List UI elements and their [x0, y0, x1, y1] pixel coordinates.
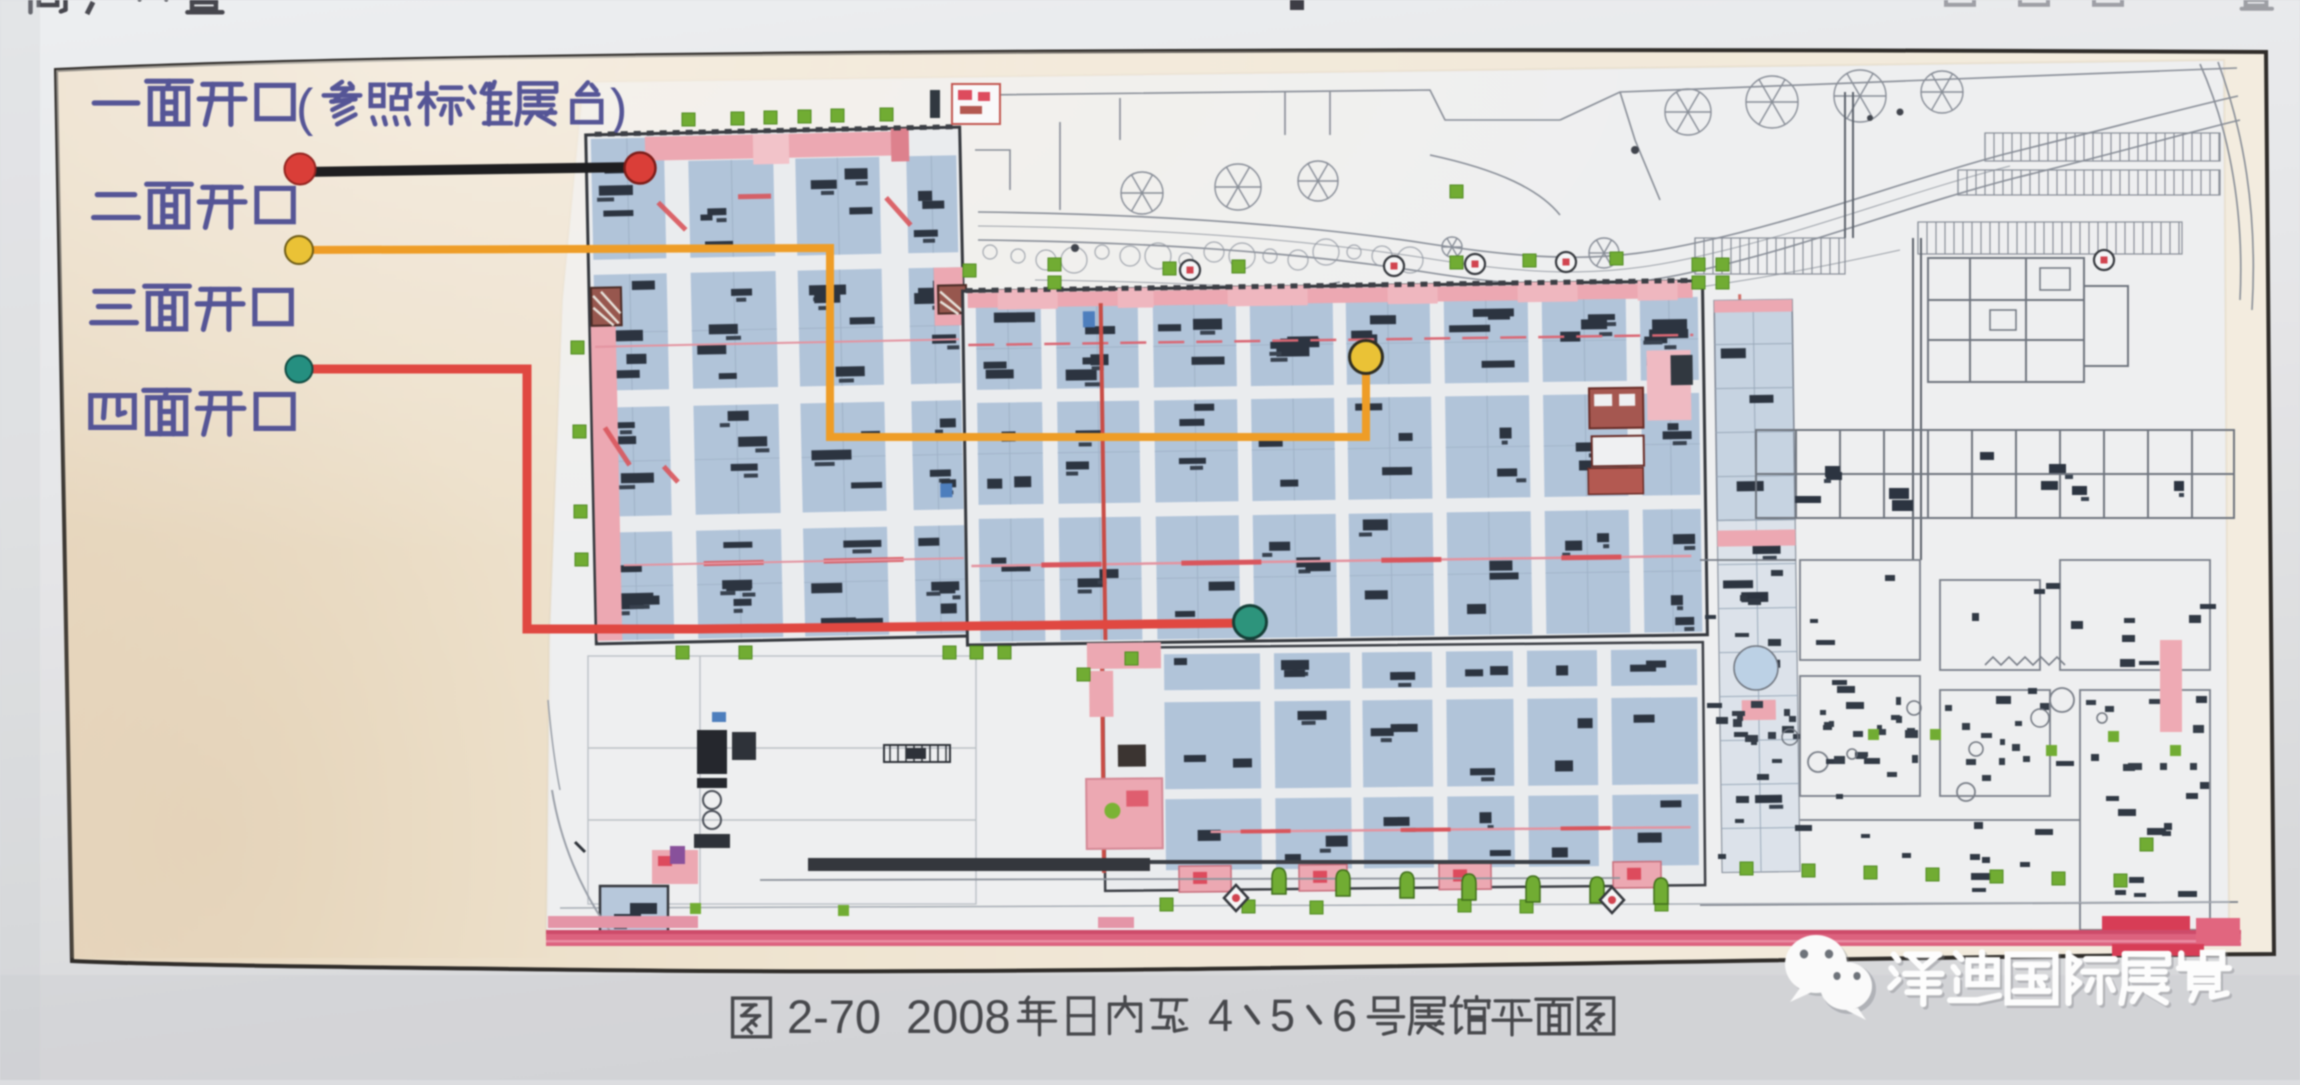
svg-text:2008: 2008 — [906, 990, 1011, 1043]
svg-text:(: ( — [296, 79, 314, 137]
svg-text:5: 5 — [1270, 990, 1295, 1041]
svg-text:2-70: 2-70 — [787, 990, 881, 1043]
svg-text:4: 4 — [1208, 990, 1233, 1041]
svg-text:6: 6 — [1332, 990, 1357, 1041]
svg-text:): ) — [610, 79, 627, 137]
